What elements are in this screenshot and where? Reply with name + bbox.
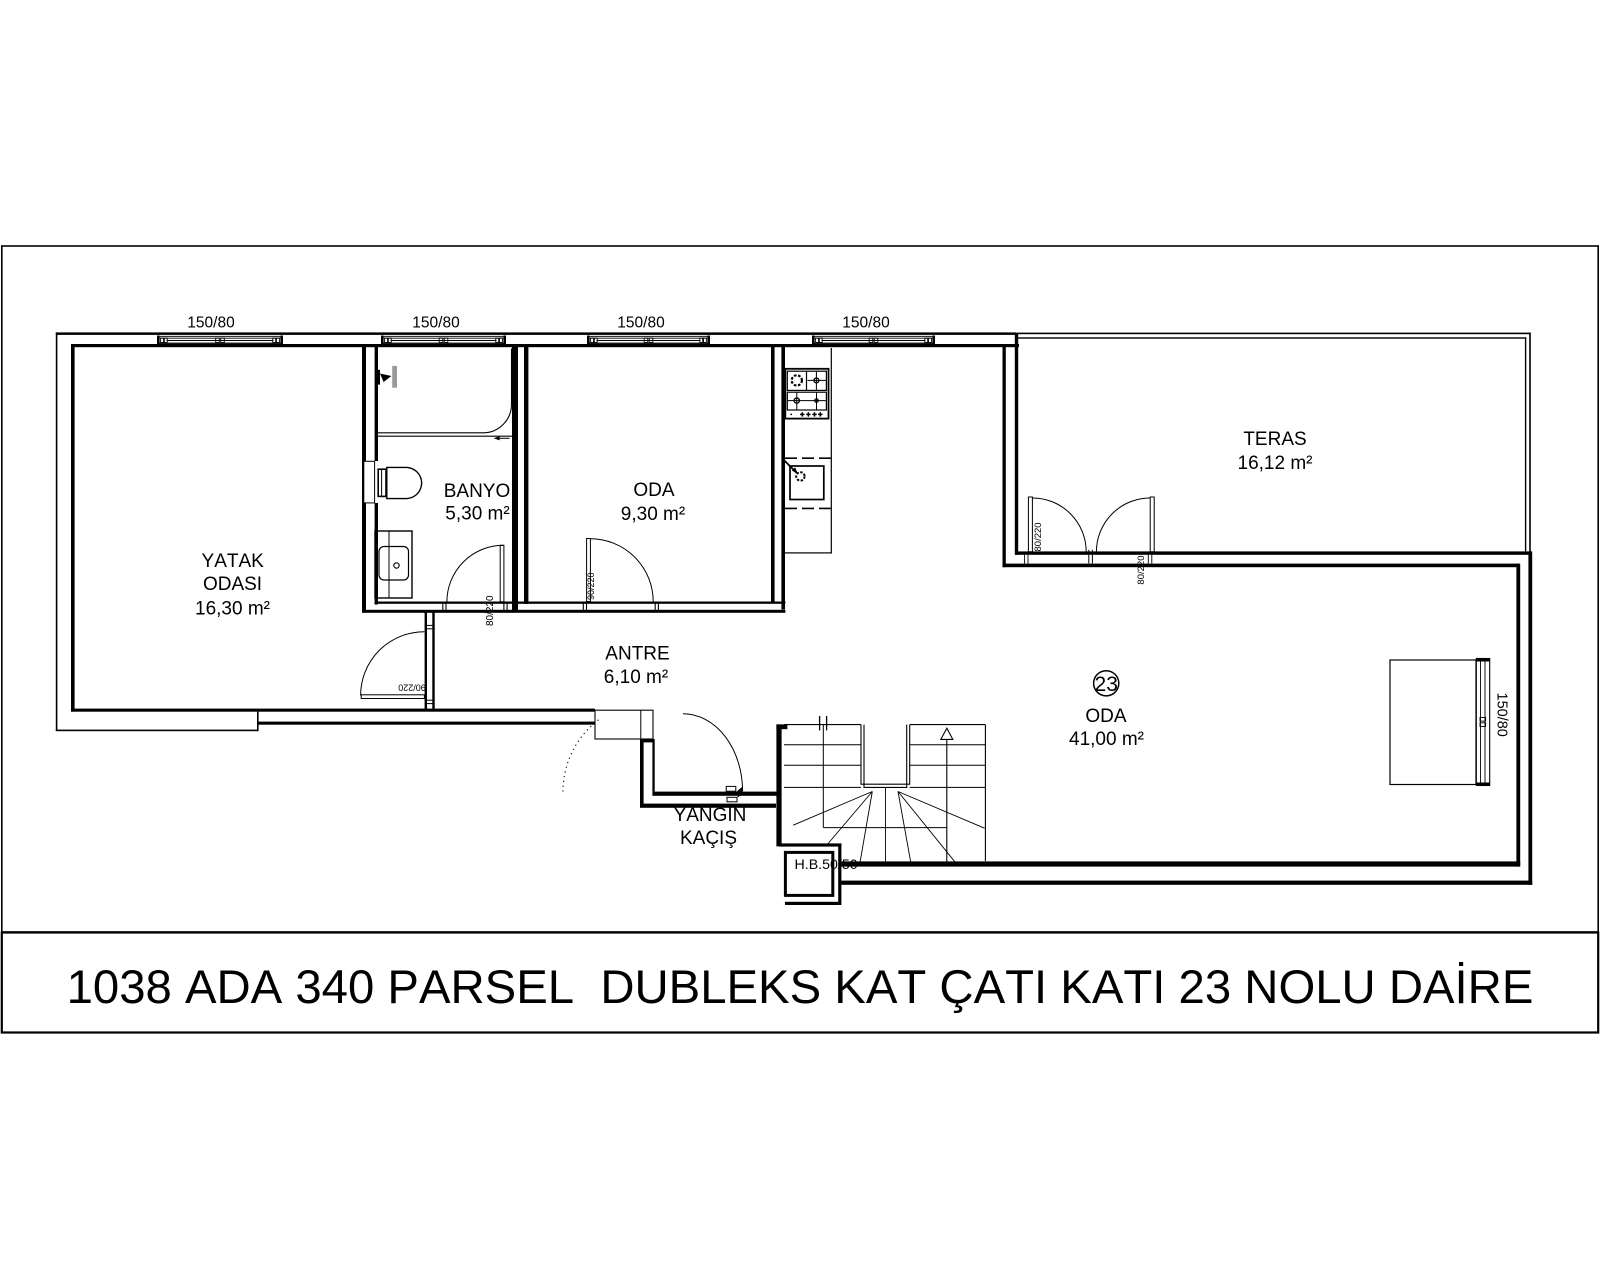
svg-text:90/220: 90/220 [398,683,426,693]
svg-text:YATAK: YATAK [202,551,265,572]
svg-text:16,30 m²: 16,30 m² [195,598,270,619]
svg-text:ANTRE: ANTRE [605,644,669,665]
svg-text:16,12 m²: 16,12 m² [1238,453,1313,474]
svg-text:150/80: 150/80 [187,314,235,331]
svg-text:150/80: 150/80 [842,314,890,331]
svg-text:41,00 m²: 41,00 m² [1069,729,1144,750]
svg-text:150/80: 150/80 [1494,693,1510,737]
svg-text:9,30 m²: 9,30 m² [621,504,685,525]
svg-text:KAÇIŞ: KAÇIŞ [680,828,737,849]
svg-text:TERAS: TERAS [1243,429,1306,450]
svg-text:ODASI: ODASI [203,574,262,595]
svg-text:80/220: 80/220 [1136,556,1147,585]
svg-text:23: 23 [1095,673,1118,696]
svg-text:80/220: 80/220 [1033,522,1044,551]
svg-text:ODA: ODA [1085,706,1127,727]
svg-text:ODA: ODA [633,480,675,501]
svg-text:90/220: 90/220 [586,572,596,600]
svg-text:6,10 m²: 6,10 m² [604,667,668,688]
svg-text:150/80: 150/80 [412,314,460,331]
svg-text:YANGIN: YANGIN [674,805,747,826]
svg-text:1038 ADA 340 PARSEL DUBLEKS K: 1038 ADA 340 PARSEL DUBLEKS KAT ÇATI KAT… [67,961,1534,1014]
svg-text:BANYO: BANYO [444,481,511,502]
svg-text:5,30 m²: 5,30 m² [445,504,509,525]
svg-text:150/80: 150/80 [617,314,665,331]
